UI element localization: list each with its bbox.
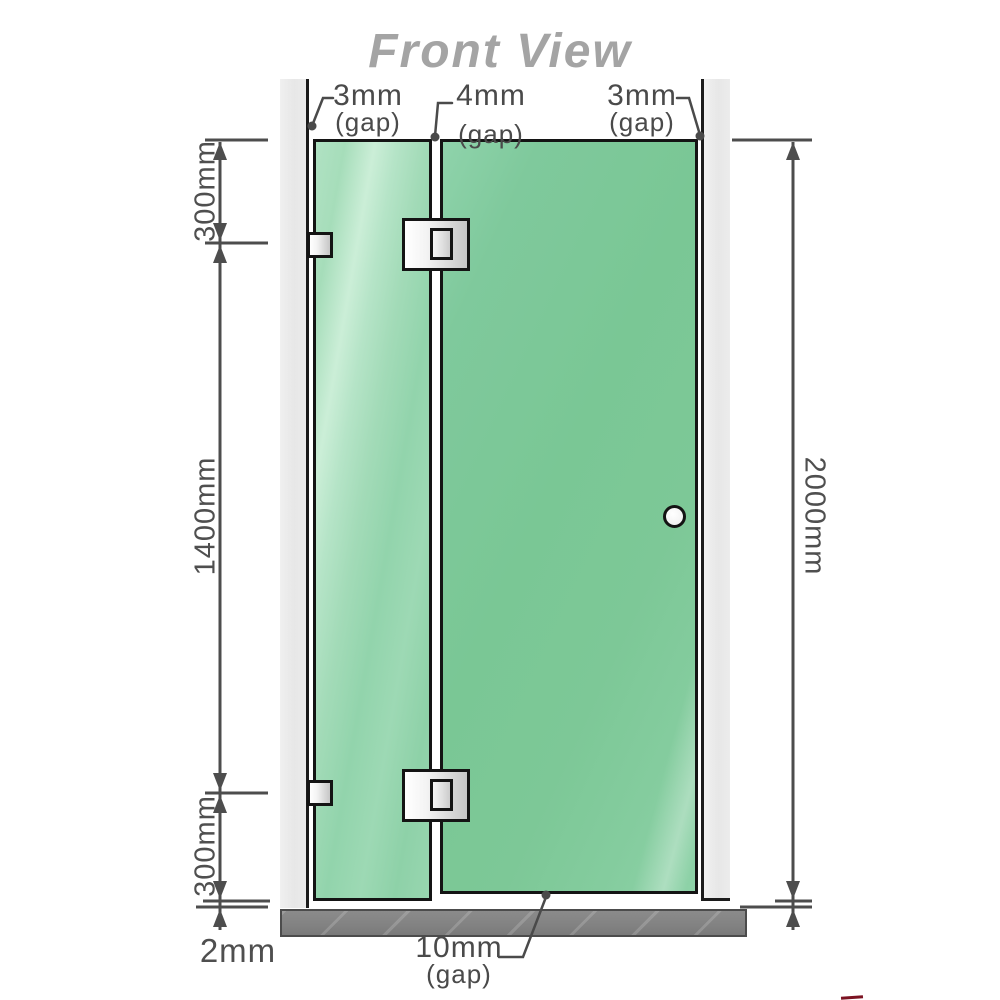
gap-label-top-left-suffix: (gap) bbox=[333, 110, 403, 134]
dim-left-middle: 1400mm bbox=[190, 457, 223, 576]
dim-right-total: 2000mm bbox=[798, 457, 831, 576]
wall-bracket-bottom bbox=[307, 780, 333, 806]
gap-label-top-left: 3mm (gap) bbox=[333, 82, 403, 134]
diagram-title: Front View bbox=[0, 24, 1000, 79]
wall-bracket-top bbox=[307, 232, 333, 258]
gap-label-top-middle: 4mm (gap) bbox=[456, 82, 526, 146]
gap-label-bottom-door: 10mm (gap) bbox=[415, 934, 502, 986]
dim-left-top: 300mm bbox=[190, 140, 223, 242]
gap-label-top-middle-value: 4mm bbox=[456, 82, 526, 110]
gap-label-top-right: 3mm (gap) bbox=[607, 82, 677, 134]
hinge-top-knuckle bbox=[430, 228, 453, 260]
dim-left-bottom: 300mm bbox=[190, 795, 223, 897]
floor-slab bbox=[280, 909, 747, 937]
door-handle-knob bbox=[663, 505, 686, 528]
wall-right bbox=[701, 79, 730, 901]
hinge-bottom-knuckle bbox=[430, 779, 453, 811]
gap-label-top-middle-suffix: (gap) bbox=[456, 122, 526, 146]
gap-label-bottom-door-value: 10mm bbox=[415, 934, 502, 962]
glass-panel-door bbox=[440, 139, 698, 894]
watermark-fragment bbox=[841, 995, 863, 1000]
gap-label-bottom-door-suffix: (gap) bbox=[415, 962, 502, 986]
gap-label-top-left-value: 3mm bbox=[333, 82, 403, 110]
gap-label-floor: 2mm bbox=[200, 932, 276, 970]
gap-label-top-right-suffix: (gap) bbox=[607, 110, 677, 134]
front-view-diagram: Front View bbox=[0, 0, 1000, 1000]
wall-left bbox=[280, 79, 309, 908]
gap-label-top-right-value: 3mm bbox=[607, 82, 677, 110]
